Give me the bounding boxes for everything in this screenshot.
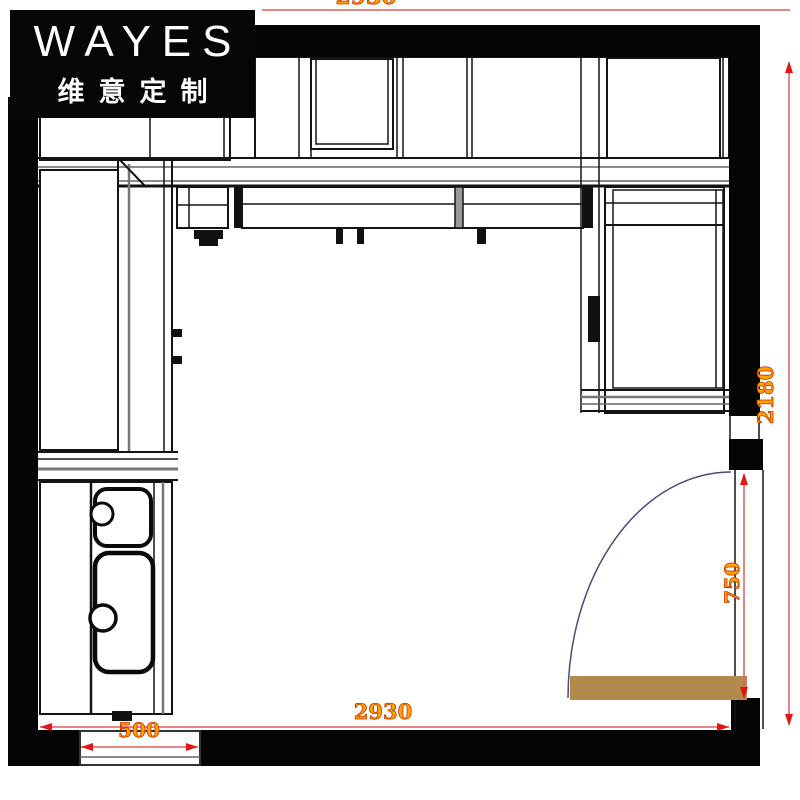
base-cabinet [242,187,583,228]
dimension-label-top: 2930 [330,0,402,8]
corner-wall-cabinet [607,58,720,158]
cabinet-handle [357,228,364,244]
arrow-down-icon [785,714,793,726]
door-jamb-top [729,439,763,470]
left-upper-cabinet [40,116,230,160]
dimension-label-right: 2180 [755,360,779,430]
arrow-up-icon [785,61,793,73]
countertop-left-edge [40,159,182,452]
cabinet-handle [588,296,600,342]
door-leaf [570,676,747,700]
bottom-wall-left [8,730,80,766]
faucet-top [91,503,113,525]
cabinet-handle [172,329,182,337]
door-swing-arc [568,472,731,698]
faucet-bottom [90,605,116,631]
cabinet-handle [172,356,182,364]
cabinet-divider-panel [455,187,463,228]
base-cabinet [177,187,228,228]
sink-unit [38,452,178,721]
dimension-label-window: 500 [111,719,167,741]
cabinet-end-panel [583,187,593,228]
brand-name: WAYES [22,19,242,65]
floor-plan-canvas: WAYES 维意定制 2930 2180 2930 750 500 [0,0,800,800]
brand-subtitle: 维意定制 [44,70,222,109]
base-cabinets-top-run [177,187,593,246]
cabinet-handle [194,230,223,239]
dimension-label-door: 750 [721,555,745,611]
top-wall [253,25,760,57]
dimension-label-bottom: 2930 [346,701,420,723]
counter-miter-corner [119,159,146,187]
left-base-cabinet [40,170,118,450]
floor-plan-drawing [0,0,800,800]
tall-cabinet-body [605,187,724,413]
arrow-up-icon [740,473,748,485]
cabinet-handle [336,228,343,244]
cabinet-handle [199,239,218,246]
bottom-wall [200,730,760,766]
brand-logo: WAYES 维意定制 [10,10,255,118]
arrow-right-icon [717,723,729,731]
cabinet-handle [477,228,486,244]
cabinet-divider-panel [234,187,242,228]
left-wall [8,97,38,765]
arrow-left-icon [40,723,52,731]
